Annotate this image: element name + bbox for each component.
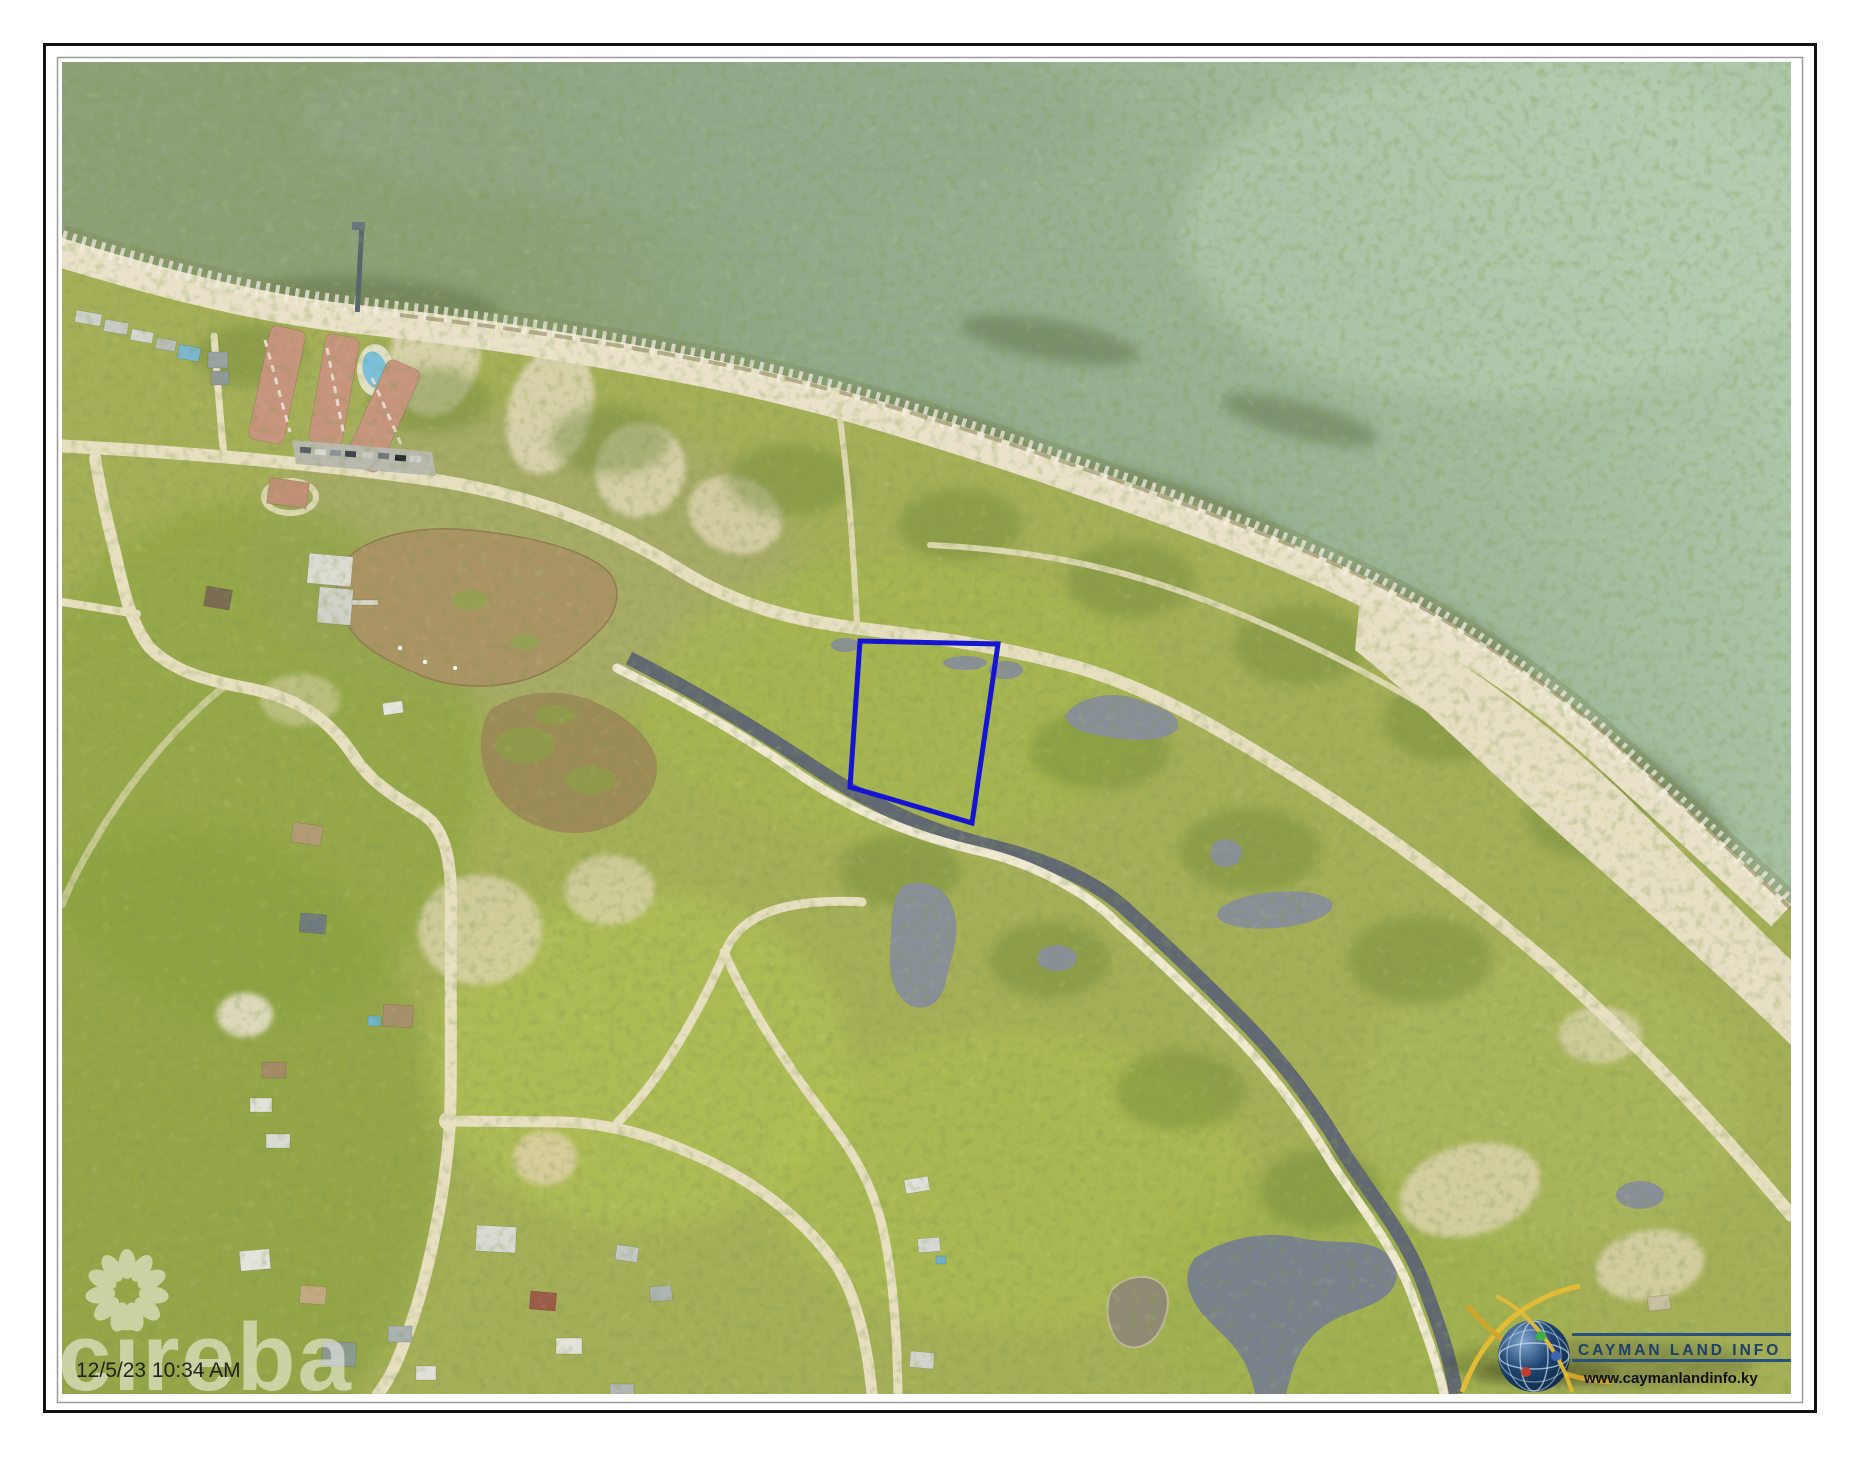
logo-url: www.caymanlandinfo.ky xyxy=(1583,1370,1758,1387)
logo-title: CAYMAN LAND INFO xyxy=(1578,1342,1781,1359)
timestamp-label: 12/5/23 10:34 AM xyxy=(76,1359,241,1382)
map-page: cireba 12/5/23 10:34 AM CAY xyxy=(0,0,1860,1458)
logo-rule-top xyxy=(1572,1333,1800,1336)
aerial-photo: cireba 12/5/23 10:34 AM CAY xyxy=(0,30,1820,1458)
aerial-map-figure: cireba 12/5/23 10:34 AM CAY xyxy=(0,0,1860,1458)
logo-rule-bottom xyxy=(1572,1359,1800,1362)
vegetation-texture-light xyxy=(62,62,1791,1394)
